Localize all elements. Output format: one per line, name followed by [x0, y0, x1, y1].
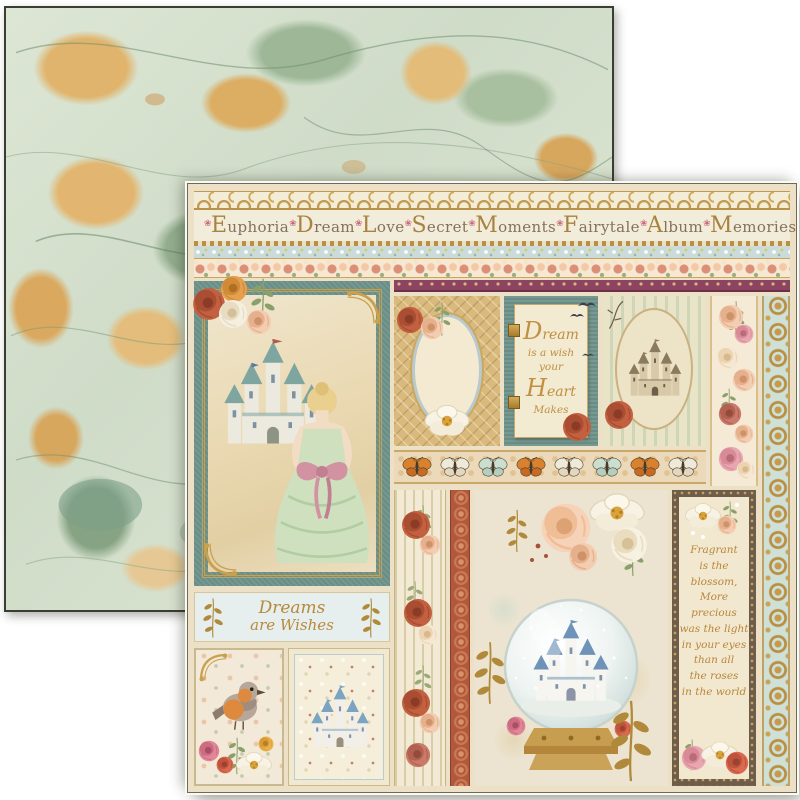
- title-word-text: Euphoria: [211, 213, 289, 238]
- castle-vignette-panel: [602, 296, 706, 446]
- title-word: ❀Secret: [404, 213, 468, 238]
- poem-panel: Fragrant is the blossom, More precious w…: [672, 490, 756, 786]
- poem-line: is the: [679, 559, 749, 575]
- poem-line: Fragrant: [679, 543, 749, 559]
- leaf-spray-icon: [357, 597, 385, 639]
- title-word-band: ❀Euphoria ❀Dream ❀Love ❀Secret ❀Moments …: [194, 210, 790, 241]
- poem-line: was the light: [679, 622, 749, 638]
- oval-frame-panel: [394, 296, 500, 446]
- flower-cluster: [194, 728, 284, 786]
- branch-icon: [606, 298, 640, 332]
- swallow-icon: [570, 312, 584, 319]
- dreams-line-2: are Wishes: [250, 618, 334, 634]
- gold-corner-icon: [202, 542, 238, 578]
- butterfly-icon: [516, 456, 546, 479]
- leaf-spray-icon: [596, 698, 666, 784]
- poem-line: in your eyes: [679, 638, 749, 654]
- small-castle-inner: [294, 654, 384, 780]
- dreams-wishes-band: Dreams are Wishes: [194, 592, 390, 642]
- robin-panel: [194, 648, 284, 786]
- quote-line: is a wish: [515, 346, 587, 360]
- swallow-icon: [578, 300, 596, 309]
- title-word-text: Fairytale: [563, 213, 640, 238]
- princess-icon: [266, 337, 376, 567]
- gold-scroll-border: [194, 191, 790, 210]
- quote-line: your: [515, 360, 587, 374]
- rust-damask-strip: [450, 490, 470, 786]
- butterfly-band: [394, 450, 706, 484]
- rose-icon: [562, 412, 592, 442]
- castle-icon: [623, 334, 687, 406]
- poem-flowers-bottom: [679, 723, 749, 779]
- leaf-spray-icon: [199, 597, 227, 639]
- title-word-text: Love: [362, 213, 405, 238]
- leaf-spray-icon: [474, 640, 512, 706]
- poem-line: blossom,: [679, 575, 749, 591]
- title-word: ❀Love: [355, 213, 405, 238]
- maroon-ribbon: [394, 280, 790, 292]
- butterfly-icon: [440, 456, 470, 479]
- rose-cluster: [394, 298, 458, 350]
- title-word-text: Memories: [710, 213, 796, 238]
- dream-quote-panel: Dream is a wish your Heart Makes: [504, 296, 598, 446]
- title-word-text: Moments: [475, 213, 556, 238]
- robin-icon: [208, 670, 272, 734]
- title-word-text: Secret: [411, 213, 468, 238]
- title-word: ❀Euphoria: [204, 213, 289, 238]
- butterfly-icon: [402, 456, 432, 479]
- rose-icon: [604, 400, 634, 430]
- rose-column: [714, 298, 758, 484]
- peony-cluster: [498, 490, 668, 590]
- title-word: ❀Memories: [703, 213, 796, 238]
- title-word: ❀Dream: [289, 213, 355, 238]
- hinge-icon: [508, 324, 520, 337]
- small-castle-panel: [288, 648, 390, 786]
- roses-strip: [710, 296, 758, 486]
- title-word-text: Dream: [296, 213, 355, 238]
- swallow-icon: [582, 352, 594, 358]
- castle-icon: [305, 679, 375, 759]
- poem-line: the roses: [679, 669, 749, 685]
- wallpaper-roses: [397, 502, 443, 774]
- snow-globe-panel: [474, 490, 668, 786]
- poem-line: than all: [679, 653, 749, 669]
- quote-line: Heart: [515, 374, 587, 403]
- product-photo: ❀Euphoria ❀Dream ❀Love ❀Secret ❀Moments …: [0, 0, 800, 800]
- rose-cluster: [190, 273, 302, 353]
- poem-line: precious: [679, 606, 749, 622]
- poem-inner: Fragrant is the blossom, More precious w…: [679, 497, 749, 779]
- title-word-text: Album: [647, 213, 703, 238]
- butterfly-icon: [592, 456, 622, 479]
- princess-panel: [194, 281, 390, 586]
- poem-line: in the world: [679, 685, 749, 701]
- daisy-border: [194, 246, 790, 258]
- butterfly-icon: [478, 456, 508, 479]
- front-collage-sheet: ❀Euphoria ❀Dream ❀Love ❀Secret ❀Moments …: [188, 184, 796, 792]
- butterfly-icon: [668, 456, 698, 479]
- right-damask-strip: [762, 296, 790, 786]
- title-word: ❀Fairytale: [556, 213, 640, 238]
- poem-flowers-top: [679, 497, 749, 543]
- title-word: ❀Moments: [468, 213, 556, 238]
- gold-corner-icon: [346, 289, 382, 325]
- poem-text: Fragrant is the blossom, More precious w…: [679, 543, 749, 701]
- butterfly-icon: [554, 456, 584, 479]
- hinge-icon: [508, 396, 520, 409]
- magnolia-icon: [422, 402, 472, 440]
- butterfly-icon: [630, 456, 660, 479]
- poem-line: More: [679, 590, 749, 606]
- title-word: ❀Album: [640, 213, 703, 238]
- rose-wallpaper-strip: [394, 490, 446, 786]
- quote-line: Dream: [515, 317, 587, 346]
